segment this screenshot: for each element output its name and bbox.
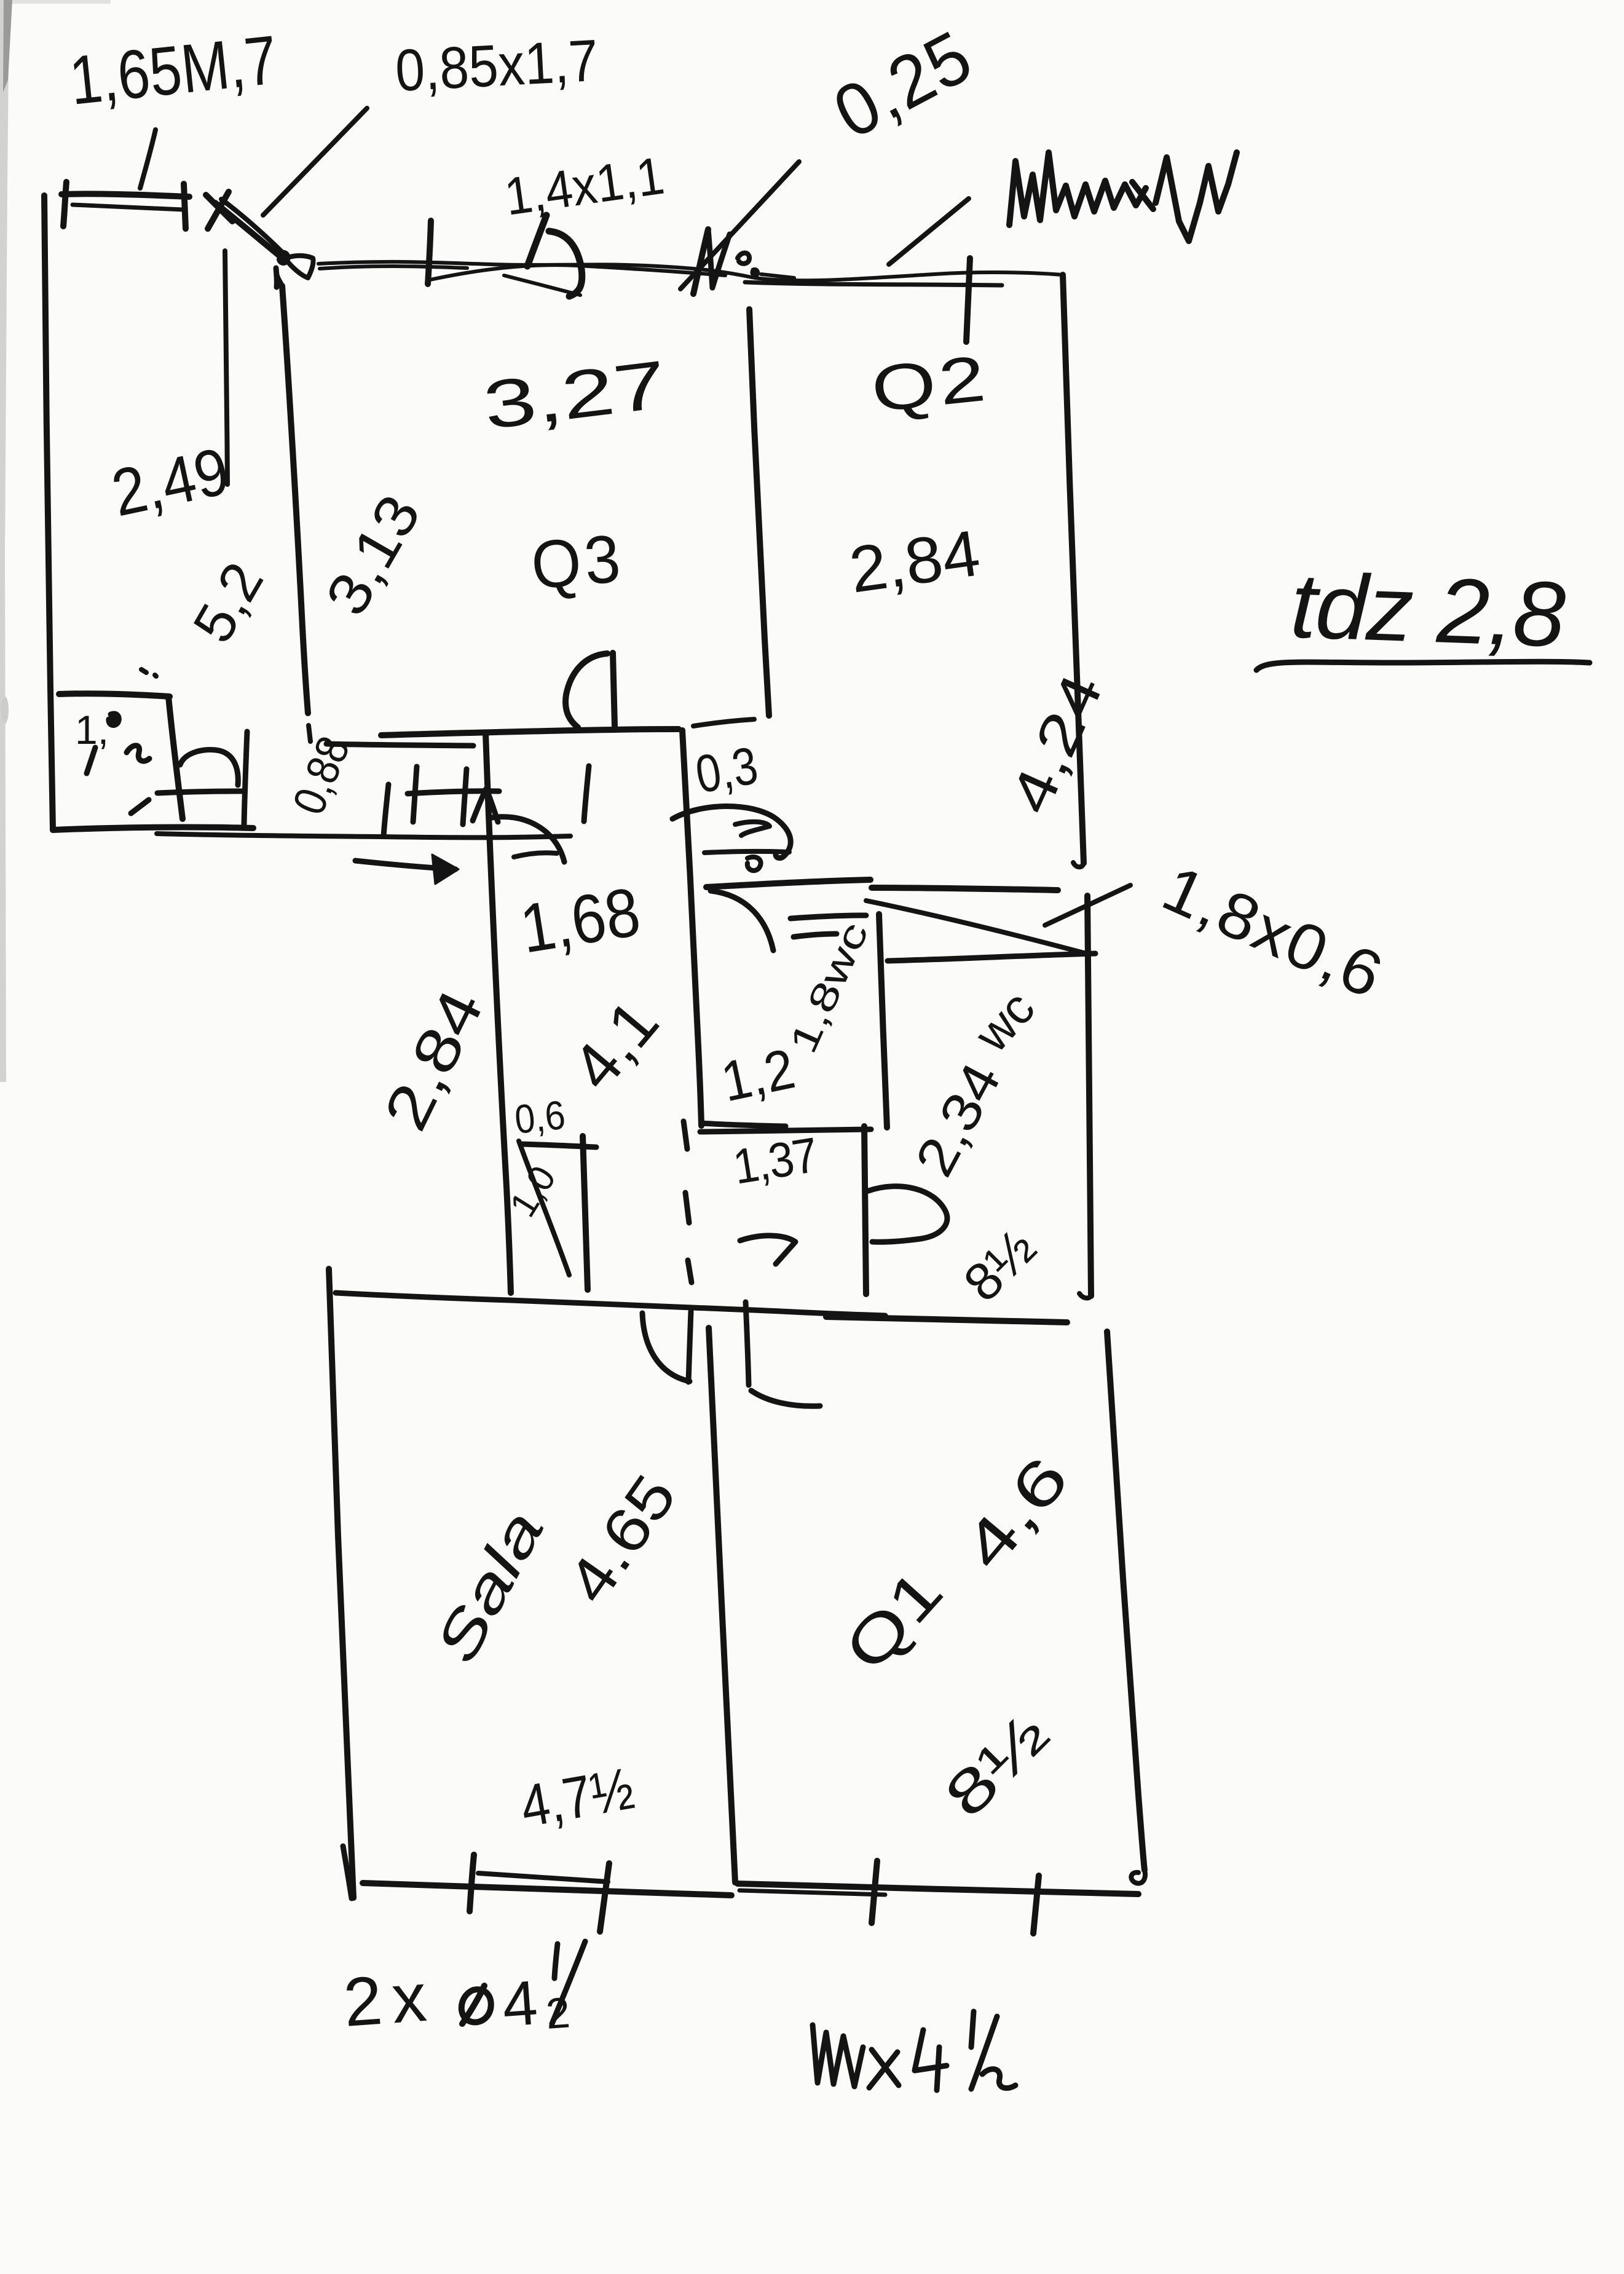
svg-text:1,: 1, (75, 707, 109, 752)
svg-text:2x: 2x (341, 1958, 439, 2041)
svg-text:Q2: Q2 (868, 342, 991, 426)
svg-text:0,3: 0,3 (692, 736, 762, 805)
svg-text:Q3: Q3 (528, 520, 626, 604)
svg-text:tdz 2,8: tdz 2,8 (1289, 553, 1567, 666)
svg-text:4: 4 (500, 1967, 540, 2040)
svg-text:0,85x1,7: 0,85x1,7 (393, 28, 599, 104)
svg-text:0,6: 0,6 (513, 1092, 567, 1142)
svg-text:2: 2 (545, 1988, 572, 2038)
